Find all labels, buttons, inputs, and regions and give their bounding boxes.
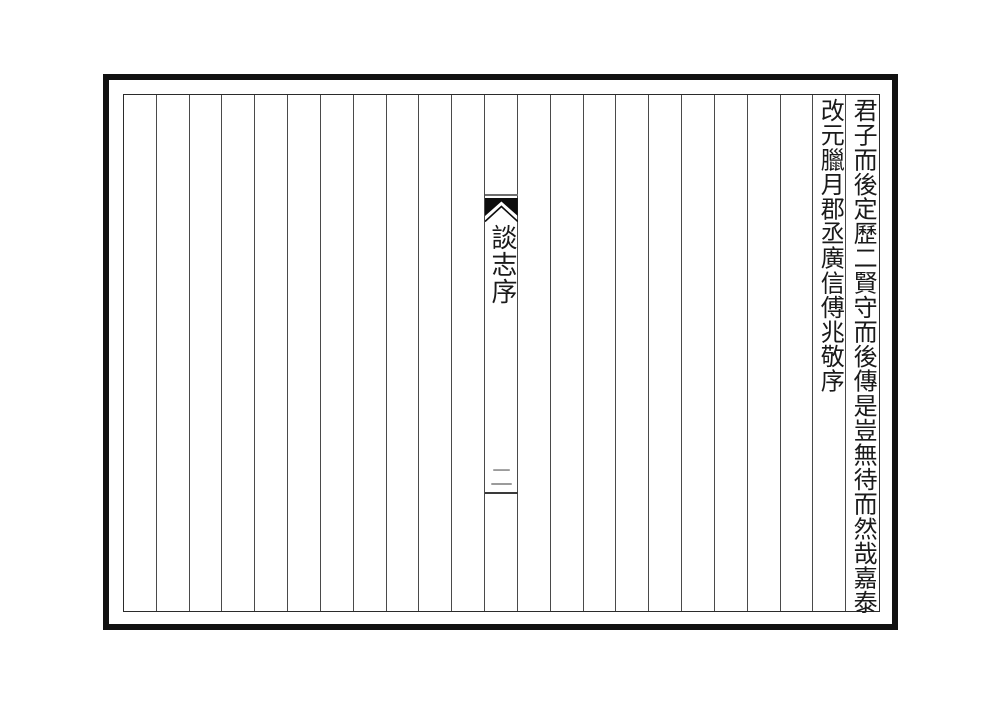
- inner-border-frame: 君子而後定歷二賢守而後傳是豈無待而然哉嘉泰 改元臘月郡丞廣信傅兆敬序 談志序: [123, 94, 880, 612]
- grid-column-6: [288, 95, 321, 611]
- grid-column-12: [485, 95, 518, 611]
- grid-column-3: [190, 95, 223, 611]
- grid-column-21: [781, 95, 814, 611]
- grid-column-23: [846, 95, 879, 611]
- grid-column-17: [649, 95, 682, 611]
- grid-column-19: [715, 95, 748, 611]
- grid-column-4: [222, 95, 255, 611]
- grid-column-2: [157, 95, 190, 611]
- grid-column-1: [124, 95, 157, 611]
- grid-column-13: [518, 95, 551, 611]
- grid-column-7: [321, 95, 354, 611]
- grid-column-20: [748, 95, 781, 611]
- grid-column-10: [419, 95, 452, 611]
- book-page: 君子而後定歷二賢守而後傳是豈無待而然哉嘉泰 改元臘月郡丞廣信傅兆敬序 談志序: [0, 0, 1000, 706]
- grid-column-8: [354, 95, 387, 611]
- grid-column-5: [255, 95, 288, 611]
- page-body: 君子而後定歷二賢守而後傳是豈無待而然哉嘉泰 改元臘月郡丞廣信傅兆敬序 談志序: [124, 95, 879, 611]
- grid-column-22: [813, 95, 846, 611]
- outer-border-frame: 君子而後定歷二賢守而後傳是豈無待而然哉嘉泰 改元臘月郡丞廣信傅兆敬序 談志序: [103, 74, 898, 630]
- grid-column-16: [616, 95, 649, 611]
- grid-column-14: [551, 95, 584, 611]
- grid-column-18: [682, 95, 715, 611]
- column-grid: [124, 95, 879, 611]
- grid-column-9: [387, 95, 420, 611]
- grid-column-11: [452, 95, 485, 611]
- grid-column-15: [584, 95, 617, 611]
